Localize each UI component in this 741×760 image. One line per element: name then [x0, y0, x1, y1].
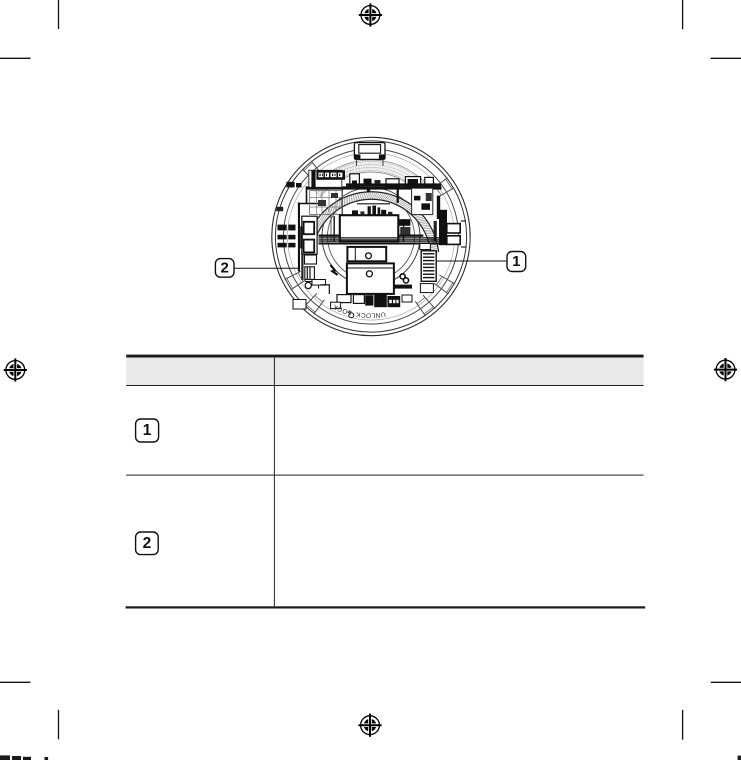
- svg-text:2: 2: [143, 535, 152, 552]
- svg-text:1: 1: [512, 253, 520, 270]
- svg-text:1: 1: [143, 422, 152, 439]
- svg-text:2: 2: [221, 259, 229, 276]
